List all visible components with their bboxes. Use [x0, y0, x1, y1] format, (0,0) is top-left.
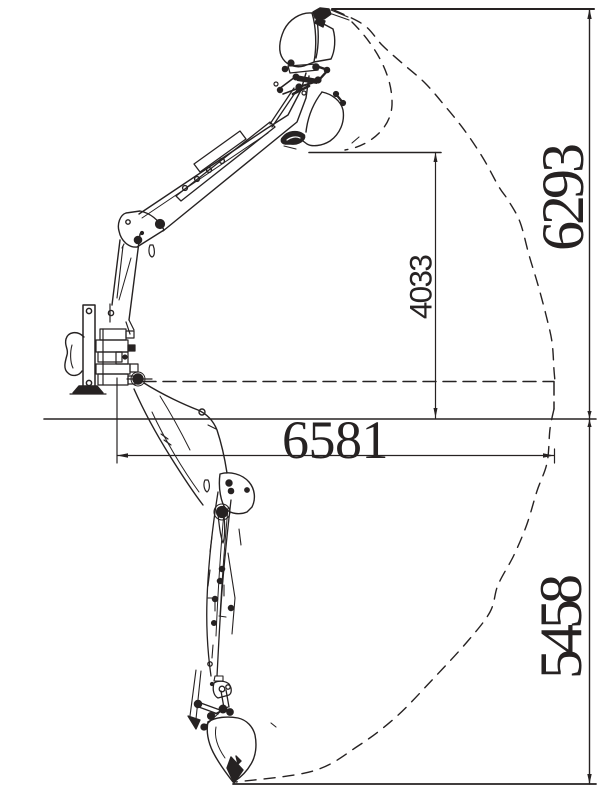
svg-text:6293: 6293 — [530, 145, 596, 251]
svg-text:4033: 4033 — [403, 255, 439, 319]
svg-text:5458: 5458 — [528, 576, 594, 679]
svg-text:6581: 6581 — [282, 410, 388, 470]
